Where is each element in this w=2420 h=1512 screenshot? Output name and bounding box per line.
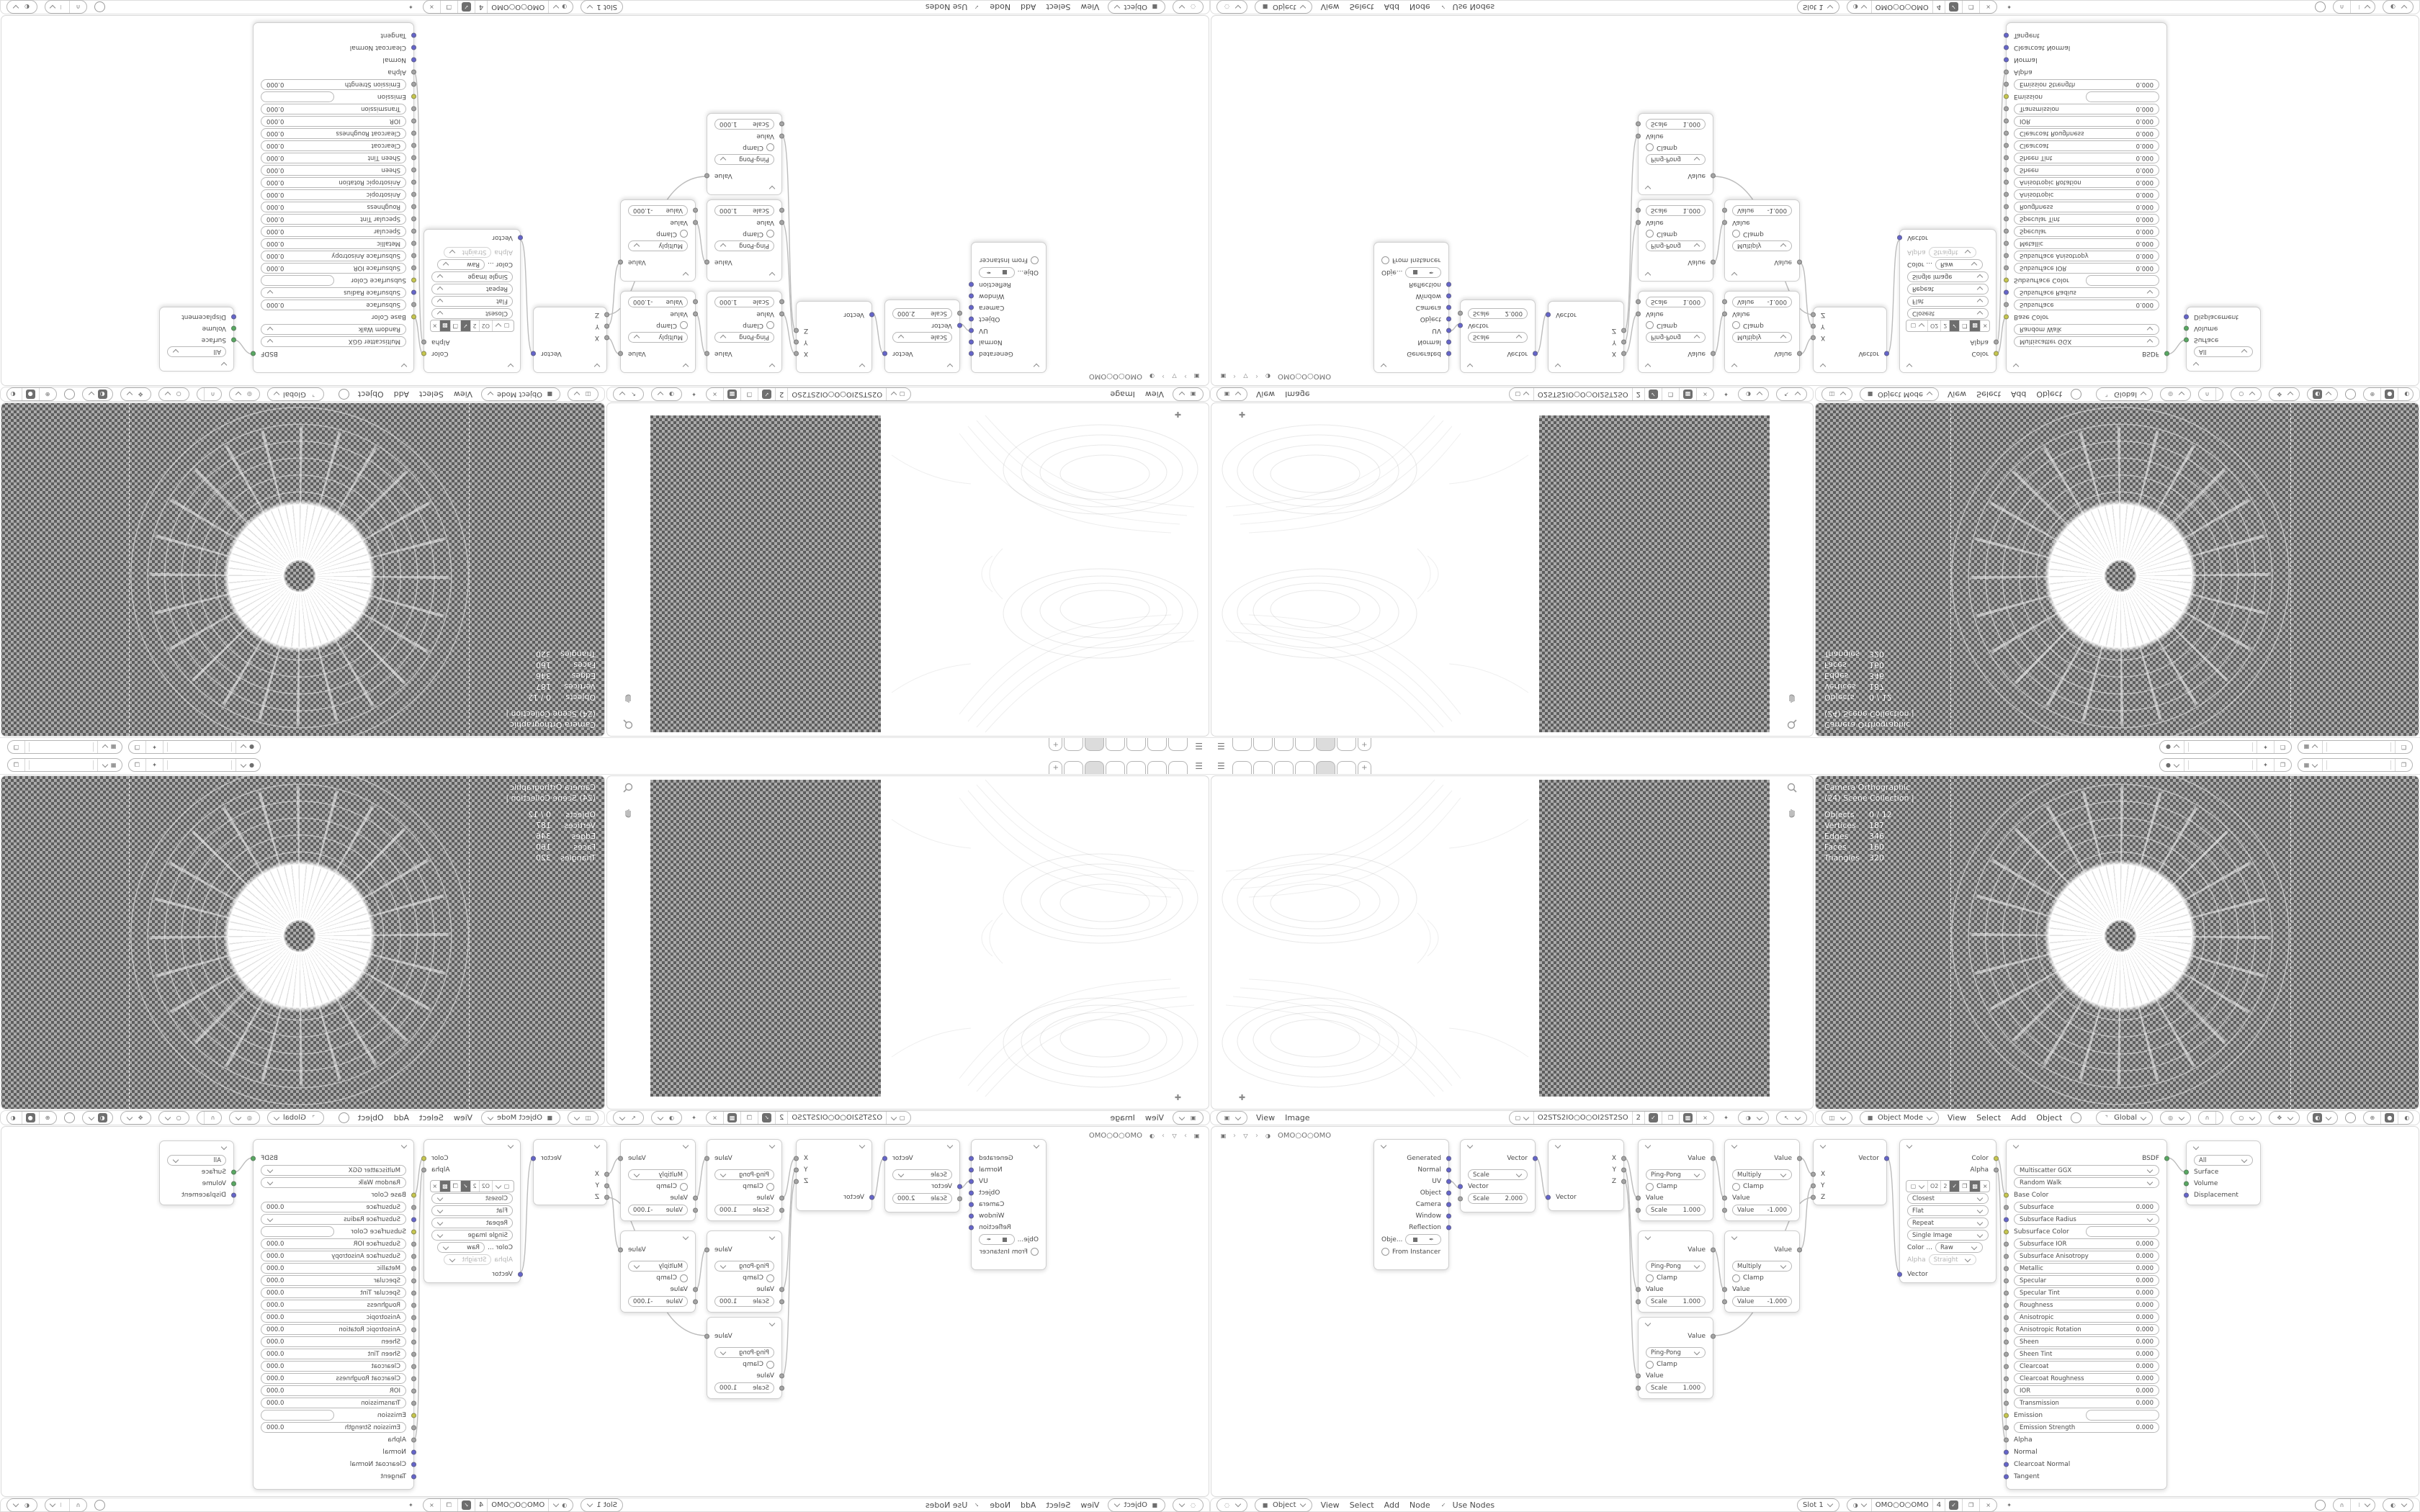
node-math-pingpong[interactable]: ValuePing-PongClampValueScale1.000: [1638, 113, 1713, 195]
socket-input[interactable]: [2004, 168, 2009, 173]
input-field[interactable]: Anisotropic Rotation 0.000: [2014, 1324, 2159, 1335]
principled-row[interactable]: Alpha Alpha: [254, 66, 413, 78]
node-image-texture[interactable]: Color Alpha ▢ O2 2 ✓ ❐ ▩ ×: [1899, 229, 1996, 373]
input-field[interactable]: Specular Tint 0.000: [261, 214, 406, 225]
principled-row[interactable]: Tangent Tangent: [254, 1470, 413, 1482]
pin-icon[interactable]: ✦: [2004, 3, 2014, 12]
operation-dropdown[interactable]: Ping-Pong: [1646, 1261, 1706, 1272]
socket-input[interactable]: [2004, 1437, 2009, 1442]
socket-volume-in[interactable]: [2184, 326, 2189, 331]
node-header[interactable]: [1725, 268, 1799, 281]
socket-vector-out[interactable]: [1533, 351, 1538, 356]
socket-alpha-out[interactable]: [421, 340, 426, 345]
socket-y-in[interactable]: [1811, 324, 1816, 329]
node-header[interactable]: [707, 1318, 781, 1331]
node-math-multiply[interactable]: ValueMultiplyClampValueValue-1.000: [1724, 199, 1800, 282]
socket-input[interactable]: [2004, 290, 2009, 295]
socket-input[interactable]: [2004, 180, 2009, 185]
principled-row[interactable]: Specular Specular 0.000: [2007, 1274, 2166, 1287]
add-workspace-button[interactable]: +: [1358, 738, 1371, 751]
menu-object[interactable]: Object: [2035, 1113, 2063, 1122]
menu-image[interactable]: Image: [1108, 390, 1136, 399]
node-header[interactable]: [424, 1140, 520, 1153]
from-instancer-checkbox[interactable]: [1381, 1248, 1389, 1256]
principled-row[interactable]: Subsurface Radius Subsurface Radius: [254, 287, 413, 299]
socket-value2-in[interactable]: [693, 1207, 698, 1212]
clamp-checkbox[interactable]: [1646, 230, 1654, 238]
socket-vector-out[interactable]: [1884, 1156, 1889, 1161]
input-field[interactable]: Subsurface Color: [2086, 1226, 2159, 1237]
socket-scale[interactable]: [957, 1196, 962, 1201]
socket-vector-out[interactable]: [1884, 351, 1889, 356]
from-instancer-checkbox[interactable]: [1381, 256, 1389, 264]
socket-value-out[interactable]: [1711, 174, 1716, 179]
node-header[interactable]: [621, 1231, 695, 1244]
browse-image-icon[interactable]: ▢: [502, 1182, 511, 1191]
operation-dropdown[interactable]: Multiply: [1732, 332, 1792, 343]
node-combine-xyz[interactable]: Vector X Y Z: [533, 1139, 607, 1205]
material-slot-selector[interactable]: Slot 1: [581, 1498, 623, 1512]
principled-row[interactable]: Tangent Tangent: [2007, 30, 2166, 42]
view-layer-selector[interactable]: ▦ ❐: [7, 758, 122, 772]
value-field[interactable]: Scale1.000: [714, 119, 774, 130]
socket-value2-in[interactable]: [1636, 208, 1641, 213]
pin-icon[interactable]: ✦: [2261, 742, 2270, 752]
socket-window[interactable]: [1446, 1214, 1451, 1219]
input-field[interactable]: Random Walk: [2014, 1177, 2159, 1188]
socket-volume-in[interactable]: [231, 1182, 236, 1187]
principled-row[interactable]: Anisotropic Rotation Anisotropic Rotatio…: [254, 1323, 413, 1336]
clamp-checkbox[interactable]: [680, 1274, 688, 1282]
operation-dropdown[interactable]: Ping-Pong: [714, 332, 774, 343]
socket-z-in[interactable]: [1811, 312, 1816, 318]
socket-input[interactable]: [2004, 58, 2009, 63]
socket-color-out[interactable]: [421, 351, 426, 356]
workspace-tab[interactable]: [1126, 761, 1146, 774]
workspace-tab[interactable]: [1126, 738, 1146, 751]
socket-volume-in[interactable]: [231, 326, 236, 331]
fake-user-shield-icon[interactable]: ✓: [1949, 1500, 1958, 1510]
unlink-icon[interactable]: ×: [710, 1113, 720, 1122]
socket-input[interactable]: [2004, 278, 2009, 283]
zoom-icon[interactable]: [1786, 782, 1798, 793]
node-math-pingpong[interactable]: ValuePing-PongClampValueScale1.000: [707, 113, 782, 195]
node-math-multiply[interactable]: ValueMultiplyClampValueValue-1.000: [1724, 1139, 1800, 1221]
socket-input[interactable]: [2004, 1425, 2009, 1430]
principled-row[interactable]: Anisotropic Anisotropic 0.000: [254, 189, 413, 201]
magnet-icon[interactable]: ∩: [208, 1113, 218, 1122]
mapping-type-dropdown[interactable]: Scale: [1468, 332, 1528, 343]
input-field[interactable]: Subsurface Anisotropy 0.000: [2014, 1251, 2159, 1261]
copy-icon[interactable]: ❐: [2399, 742, 2408, 752]
clamp-checkbox[interactable]: [1646, 1361, 1654, 1369]
scene-selector[interactable]: ● ✦ ❐: [128, 740, 261, 754]
input-field[interactable]: Metallic 0.000: [2014, 238, 2159, 249]
socket-input[interactable]: [2004, 1217, 2009, 1222]
annotate-tool-button[interactable]: [2071, 1112, 2081, 1123]
socket-input[interactable]: [2004, 156, 2009, 161]
input-field[interactable]: Metallic 0.000: [261, 238, 406, 249]
transform-orientation[interactable]: ⌝Global: [267, 1111, 324, 1125]
workspace-tab[interactable]: [1064, 738, 1083, 751]
pack-image-icon[interactable]: ▩: [1683, 1113, 1693, 1122]
principled-row[interactable]: Emission Strength Emission Strength 0.00…: [2007, 78, 2166, 91]
source-dropdown[interactable]: Single Image: [431, 1230, 513, 1241]
socket-camera[interactable]: [969, 305, 974, 310]
socket-input[interactable]: [411, 1278, 416, 1283]
clamp-checkbox[interactable]: [766, 322, 774, 330]
image-users-count[interactable]: 2: [471, 320, 480, 331]
principled-row[interactable]: IOR IOR 0.000: [2007, 1385, 2166, 1397]
menu-add[interactable]: Add: [1383, 3, 1401, 12]
node-header[interactable]: [1374, 1140, 1448, 1153]
operation-dropdown[interactable]: Ping-Pong: [1646, 1347, 1706, 1358]
principled-row[interactable]: Metallic Metallic 0.000: [2007, 1262, 2166, 1274]
node-header[interactable]: [707, 1140, 781, 1153]
pin-icon[interactable]: ✦: [406, 3, 416, 12]
socket-value2-in[interactable]: [1722, 1299, 1727, 1304]
node-header[interactable]: [1461, 1140, 1535, 1153]
solid-shading-icon[interactable]: ●: [26, 1113, 35, 1122]
input-field[interactable]: Roughness 0.000: [261, 202, 406, 212]
principled-row[interactable]: Clearcoat Clearcoat 0.000: [2007, 140, 2166, 152]
browse-image-icon[interactable]: ▢: [502, 321, 511, 330]
principled-row[interactable]: Multiscatter GGX Multiscatter GGX: [2007, 336, 2166, 348]
node-header[interactable]: [972, 1140, 1046, 1153]
node-texture-coordinate[interactable]: Generated Normal UV Object Camera Window…: [971, 242, 1047, 373]
new-image-icon[interactable]: ❐: [1959, 320, 1969, 331]
value-field[interactable]: Scale1.000: [1646, 1296, 1706, 1307]
socket-window[interactable]: [969, 294, 974, 299]
add-workspace-button[interactable]: +: [1049, 761, 1062, 774]
socket-input[interactable]: [2004, 1462, 2009, 1467]
socket-input[interactable]: [411, 1376, 416, 1381]
image-users-count[interactable]: 2: [1940, 320, 1949, 331]
mode-selector[interactable]: ■Object Mode: [1860, 387, 1939, 401]
alpha-mode-dropdown[interactable]: Straight: [444, 1254, 491, 1265]
workspace-tab-active[interactable]: [1316, 738, 1335, 751]
principled-row[interactable]: Emission Strength Emission Strength 0.00…: [254, 78, 413, 91]
new-material-icon[interactable]: ❐: [1966, 1500, 1976, 1510]
node-separate-xyz[interactable]: X Y Z Vector: [1548, 1139, 1624, 1211]
socket-value-in[interactable]: [779, 1374, 784, 1379]
material-shading-icon[interactable]: ◐: [9, 390, 18, 399]
copy-icon[interactable]: ❐: [133, 742, 142, 752]
socket-value2-in[interactable]: [779, 208, 784, 213]
principled-row[interactable]: Roughness Roughness 0.000: [254, 201, 413, 213]
operation-dropdown[interactable]: Ping-Pong: [714, 154, 774, 165]
value-field[interactable]: Value-1.000: [1732, 297, 1792, 307]
socket-y-in[interactable]: [604, 1184, 609, 1189]
input-field[interactable]: Clearcoat Roughness 0.000: [2014, 128, 2159, 139]
menu-object[interactable]: Object: [357, 390, 385, 399]
material-users-count[interactable]: 4: [1932, 1499, 1945, 1511]
socket-input[interactable]: [2004, 192, 2009, 197]
input-field[interactable]: Emission: [2086, 1410, 2159, 1421]
socket-input[interactable]: [411, 70, 416, 75]
input-field[interactable]: Emission Strength 0.000: [261, 79, 406, 90]
principled-row[interactable]: Roughness Roughness 0.000: [2007, 1299, 2166, 1311]
socket-displacement-in[interactable]: [231, 315, 236, 320]
input-field[interactable]: IOR 0.000: [2014, 116, 2159, 127]
node-principled-bsdf[interactable]: BSDF Multiscatter GGX Multiscatter GGX R…: [253, 1139, 414, 1490]
socket-value-in[interactable]: [693, 220, 698, 225]
principled-row[interactable]: Transmission Transmission 0.000: [2007, 103, 2166, 115]
socket-value2-in[interactable]: [779, 1385, 784, 1390]
material-slot-selector[interactable]: Slot 1: [581, 1, 623, 14]
principled-row[interactable]: Sheen Tint Sheen Tint 0.000: [254, 1348, 413, 1360]
socket-vector-in[interactable]: [1458, 323, 1463, 328]
input-field[interactable]: Clearcoat 0.000: [2014, 140, 2159, 151]
socket-input[interactable]: [411, 1315, 416, 1320]
node-header[interactable]: [1725, 359, 1799, 372]
value-field[interactable]: Value-1.000: [628, 1205, 688, 1215]
value-field[interactable]: Scale1.000: [1646, 119, 1706, 130]
fake-user-shield-icon[interactable]: ✓: [1649, 1113, 1658, 1122]
socket-value-in[interactable]: [1636, 1374, 1641, 1379]
socket-uv[interactable]: [969, 1179, 974, 1184]
socket-value-out[interactable]: [1711, 351, 1716, 356]
socket-input[interactable]: [411, 217, 416, 222]
workspace-tab[interactable]: [1168, 761, 1188, 774]
node-image-texture[interactable]: Color Alpha ▢ O2 2 ✓ ❐ ▩ ×: [423, 229, 521, 373]
xray-toggle[interactable]: [64, 1112, 75, 1123]
socket-input[interactable]: [411, 290, 416, 295]
socket-camera[interactable]: [1446, 1202, 1451, 1207]
unlink-icon[interactable]: ×: [427, 1500, 436, 1510]
material-slot-selector[interactable]: Slot 1: [1797, 1, 1839, 14]
principled-row[interactable]: Anisotropic Anisotropic 0.000: [2007, 1311, 2166, 1323]
socket-value-in[interactable]: [1722, 1196, 1727, 1201]
magnet-icon[interactable]: ∩: [2202, 390, 2212, 399]
socket-x-out[interactable]: [1621, 351, 1626, 356]
input-field[interactable]: Sheen 0.000: [2014, 1336, 2159, 1347]
proportional-edit-button[interactable]: ○: [2231, 387, 2262, 401]
unlink-icon[interactable]: ×: [427, 3, 436, 12]
menu-view[interactable]: View: [452, 1113, 474, 1122]
socket-x-in[interactable]: [1811, 336, 1816, 341]
wireframe-shading-icon[interactable]: ⊕: [43, 1113, 53, 1122]
eyedropper-icon[interactable]: ✒: [984, 268, 993, 277]
socket-input[interactable]: [411, 180, 416, 185]
input-field[interactable]: Anisotropic Rotation 0.000: [2014, 177, 2159, 188]
snapping-group[interactable]: ∩ ⁝: [2333, 1, 2375, 14]
annotate-tool-button[interactable]: [2071, 389, 2081, 400]
clamp-checkbox[interactable]: [680, 322, 688, 330]
node-math-multiply[interactable]: ValueMultiplyClampValueValue-1.000: [1724, 291, 1800, 373]
pack-image-icon[interactable]: ▩: [727, 1113, 737, 1122]
workspace-tab[interactable]: [1147, 738, 1167, 751]
image-users-count[interactable]: 2: [1632, 388, 1644, 400]
principled-row[interactable]: Anisotropic Rotation Anisotropic Rotatio…: [2007, 176, 2166, 189]
wireframe-shading-icon[interactable]: ⊕: [2367, 390, 2377, 399]
material-name[interactable]: OMO○O○OMO: [488, 1499, 549, 1511]
scale-field[interactable]: Scale2.000: [1468, 308, 1528, 319]
fake-user-shield-icon[interactable]: ✓: [1949, 1181, 1959, 1192]
show-gizmo-button[interactable]: ✥: [120, 387, 151, 401]
socket-vector-out[interactable]: [1533, 1156, 1538, 1161]
socket-input[interactable]: [411, 1437, 416, 1442]
socket-y-in[interactable]: [604, 324, 609, 329]
input-field[interactable]: Clearcoat 0.000: [2014, 1361, 2159, 1372]
node-separate-xyz[interactable]: X Y Z Vector: [796, 1139, 872, 1211]
socket-input[interactable]: [411, 1364, 416, 1369]
alpha-mode-dropdown[interactable]: Straight: [1929, 1254, 1976, 1265]
node-math-multiply[interactable]: ValueMultiplyClampValueValue-1.000: [620, 1230, 696, 1313]
clamp-checkbox[interactable]: [766, 1274, 774, 1282]
input-field[interactable]: Random Walk: [261, 324, 406, 335]
node-math-pingpong[interactable]: ValuePing-PongClampValueScale1.000: [707, 1139, 782, 1221]
socket-vector-in[interactable]: [869, 312, 874, 318]
socket-input[interactable]: [2004, 1266, 2009, 1271]
clamp-checkbox[interactable]: [766, 230, 774, 238]
principled-row[interactable]: Subsurface Anisotropy Subsurface Anisotr…: [2007, 1250, 2166, 1262]
principled-row[interactable]: Clearcoat Clearcoat 0.000: [254, 1360, 413, 1372]
node-header[interactable]: [707, 181, 781, 194]
principled-row[interactable]: Specular Tint Specular Tint 0.000: [254, 213, 413, 225]
socket-scale[interactable]: [1458, 1196, 1463, 1201]
input-field[interactable]: Sheen 0.000: [261, 165, 406, 176]
menu-node[interactable]: Node: [988, 1500, 1012, 1510]
editor-type-button[interactable]: ◌: [1216, 1498, 1247, 1512]
socket-vector-out[interactable]: [882, 351, 887, 356]
image-users-count[interactable]: 2: [1632, 1112, 1644, 1124]
mapping-type-dropdown[interactable]: Scale: [892, 332, 952, 343]
node-math-multiply[interactable]: ValueMultiplyClampValueValue-1.000: [620, 199, 696, 282]
snapping-group[interactable]: ∩ ⁝: [45, 1498, 87, 1512]
socket-input[interactable]: [2004, 229, 2009, 234]
node-header[interactable]: [621, 1140, 695, 1153]
operation-dropdown[interactable]: Multiply: [628, 1261, 688, 1272]
socket-reflection[interactable]: [969, 1225, 974, 1230]
principled-row[interactable]: Anisotropic Anisotropic 0.000: [254, 1311, 413, 1323]
socket-vector-in[interactable]: [1546, 1195, 1551, 1200]
node-math-pingpong[interactable]: ValuePing-PongClampValueScale1.000: [1638, 1139, 1713, 1221]
principled-row[interactable]: Sheen Sheen 0.000: [2007, 1336, 2166, 1348]
operation-dropdown[interactable]: Ping-Pong: [1646, 1169, 1706, 1180]
input-field[interactable]: Subsurface Color: [2086, 275, 2159, 286]
source-dropdown[interactable]: Single Image: [1907, 1230, 1989, 1241]
clamp-checkbox[interactable]: [1732, 1274, 1740, 1282]
input-field[interactable]: Emission Strength 0.000: [2014, 79, 2159, 90]
socket-input[interactable]: [411, 1229, 416, 1234]
unlink-icon[interactable]: ×: [1980, 320, 1990, 331]
object-picker-field[interactable]: ■✒: [1405, 1234, 1441, 1245]
pan-hand-icon[interactable]: [1786, 694, 1798, 706]
socket-input[interactable]: [2004, 1474, 2009, 1479]
input-field[interactable]: Specular Tint 0.000: [2014, 214, 2159, 225]
node-material-output[interactable]: All Surface Volume Displacement: [159, 1140, 234, 1205]
node-mapping[interactable]: Vector Scale Vector Scale2.000: [884, 300, 960, 373]
editor-type-button[interactable]: ◫: [1821, 387, 1852, 401]
object-picker-field[interactable]: ■✒: [979, 1234, 1015, 1245]
overlays-button[interactable]: ◐: [2383, 1, 2414, 14]
principled-row[interactable]: Random Walk Random Walk: [2007, 1176, 2166, 1189]
node-header[interactable]: [2187, 358, 2260, 371]
socket-input[interactable]: [2004, 1388, 2009, 1393]
principled-row[interactable]: Subsurface Radius Subsurface Radius: [2007, 287, 2166, 299]
node-header[interactable]: [707, 268, 781, 281]
socket-input[interactable]: [2004, 143, 2009, 148]
node-header[interactable]: [534, 1140, 606, 1153]
solid-shading-icon[interactable]: ●: [2385, 390, 2394, 399]
socket-value2-in[interactable]: [693, 1299, 698, 1304]
input-field[interactable]: Transmission 0.000: [261, 104, 406, 114]
socket-bsdf-out[interactable]: [251, 1156, 256, 1161]
colorspace-dropdown[interactable]: Raw: [437, 259, 485, 270]
pivot-point-button[interactable]: ◎: [229, 1111, 260, 1125]
annotate-tool-button[interactable]: [339, 1112, 349, 1123]
node-header[interactable]: [1549, 1140, 1623, 1153]
socket-normal[interactable]: [1446, 1168, 1451, 1173]
clamp-checkbox[interactable]: [1646, 322, 1654, 330]
browse-image-icon[interactable]: ▢: [1513, 390, 1523, 399]
value-field[interactable]: Value-1.000: [628, 297, 688, 307]
node-math-pingpong[interactable]: ValuePing-PongClampValueScale1.000: [707, 1317, 782, 1399]
input-field[interactable]: Subsurface Anisotropy 0.000: [261, 251, 406, 261]
input-field[interactable]: Subsurface 0.000: [261, 300, 406, 310]
menu-select[interactable]: Select: [1044, 1500, 1072, 1510]
principled-row[interactable]: Clearcoat Roughness Clearcoat Roughness …: [2007, 127, 2166, 140]
workspace-tab[interactable]: [1168, 738, 1188, 751]
socket-input[interactable]: [2004, 1351, 2009, 1356]
mapping-type-dropdown[interactable]: Scale: [892, 1169, 952, 1180]
node-header[interactable]: [1814, 1140, 1886, 1153]
socket-value-out[interactable]: [1797, 1156, 1802, 1161]
snapping-group[interactable]: ∩ ⁝: [2333, 1498, 2375, 1512]
socket-value-out[interactable]: [618, 1156, 623, 1161]
socket-input[interactable]: [411, 253, 416, 258]
principled-row[interactable]: Metallic Metallic 0.000: [2007, 238, 2166, 250]
socket-value2-in[interactable]: [779, 1207, 784, 1212]
new-material-icon[interactable]: ❐: [444, 1500, 454, 1510]
scene-name-field[interactable]: [2188, 760, 2253, 770]
input-field[interactable]: Anisotropic 0.000: [2014, 1312, 2159, 1323]
use-nodes-toggle[interactable]: ✓ Use Nodes: [924, 3, 982, 12]
menu-view[interactable]: View: [1319, 3, 1341, 12]
input-field[interactable]: Random Walk: [261, 1177, 406, 1188]
socket-input[interactable]: [2004, 70, 2009, 75]
new-image-icon[interactable]: ❐: [745, 1113, 754, 1122]
shader-type-selector[interactable]: ■Object: [1108, 1498, 1165, 1512]
shader-type-selector[interactable]: ■Object: [1255, 1, 1312, 14]
node-combine-xyz[interactable]: Vector X Y Z: [1813, 1139, 1887, 1205]
socket-value-in[interactable]: [1636, 312, 1641, 317]
socket-x-out[interactable]: [1621, 1156, 1626, 1161]
pack-image-icon[interactable]: ▩: [440, 320, 451, 331]
principled-row[interactable]: Specular Tint Specular Tint 0.000: [2007, 213, 2166, 225]
principled-row[interactable]: Normal Normal: [254, 1446, 413, 1458]
pin-icon[interactable]: ✦: [689, 390, 699, 399]
socket-input[interactable]: [411, 143, 416, 148]
socket-bsdf-out[interactable]: [2164, 1156, 2169, 1161]
extension-dropdown[interactable]: Repeat: [431, 1218, 513, 1228]
socket-input[interactable]: [411, 241, 416, 246]
socket-z-out[interactable]: [1621, 328, 1626, 333]
operation-dropdown[interactable]: Multiply: [1732, 1261, 1792, 1272]
eyedropper-icon[interactable]: ✒: [1427, 1235, 1436, 1244]
unlink-icon[interactable]: ×: [430, 1181, 440, 1192]
workspace-tab[interactable]: [1232, 738, 1252, 751]
value-field[interactable]: Value-1.000: [1732, 1296, 1792, 1307]
menu-select[interactable]: Select: [1044, 3, 1072, 12]
node-mapping[interactable]: Vector Scale Vector Scale2.000: [1460, 1139, 1536, 1212]
copy-icon[interactable]: ❐: [12, 742, 21, 752]
node-header[interactable]: [1639, 1231, 1713, 1244]
material-name[interactable]: OMO○O○OMO: [1871, 1499, 1932, 1511]
socket-x-out[interactable]: [794, 1156, 799, 1161]
socket-vector-in[interactable]: [957, 1184, 962, 1189]
